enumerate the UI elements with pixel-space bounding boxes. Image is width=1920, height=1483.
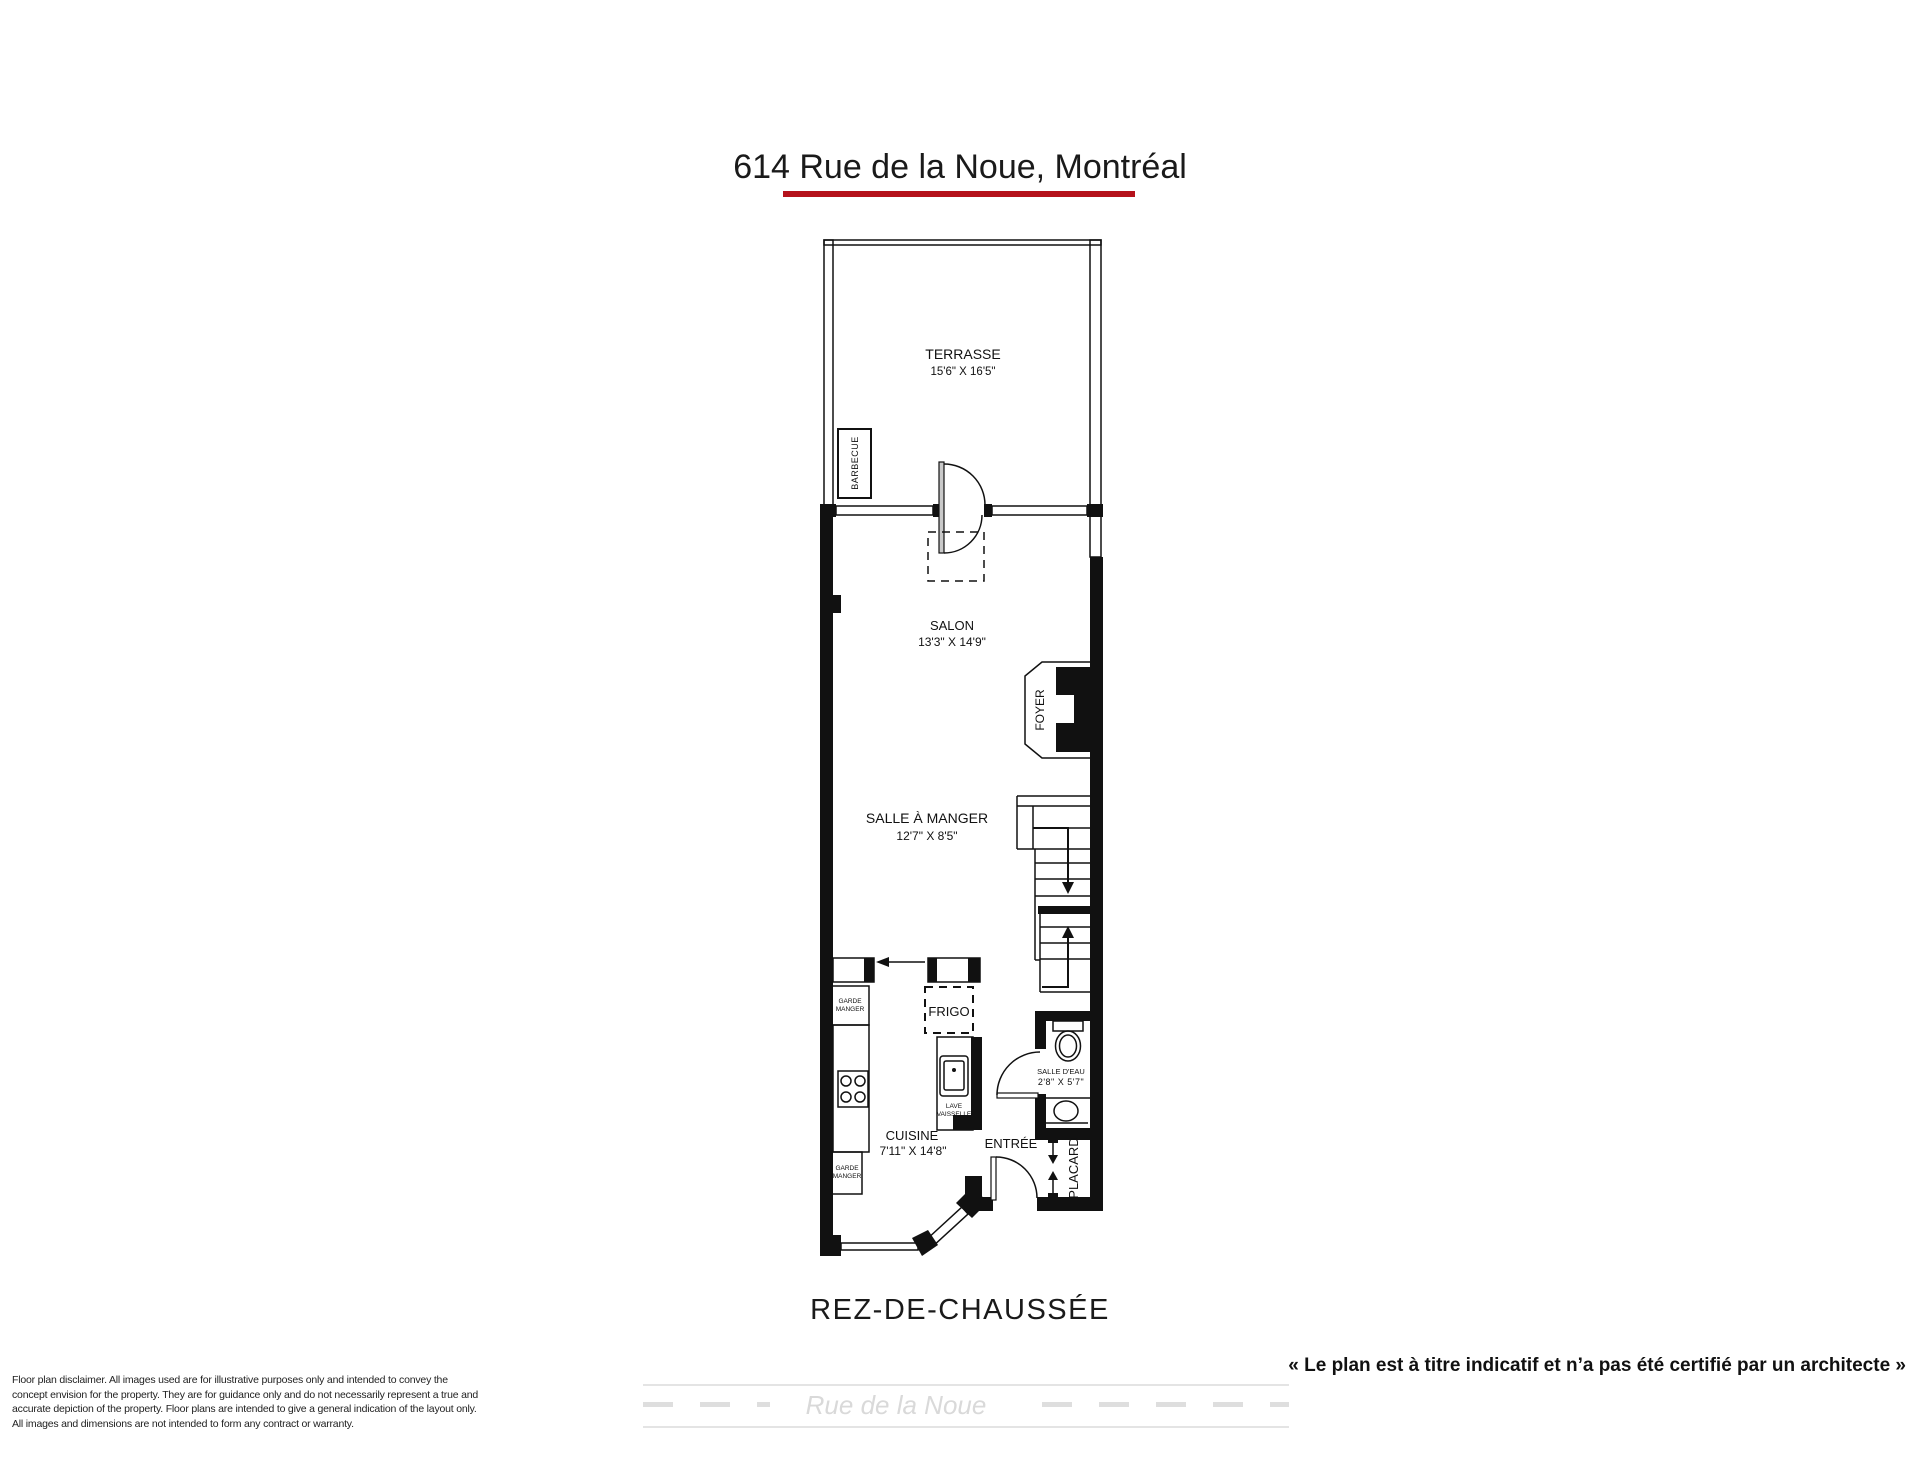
page-title: 614 Rue de la Noue, Montréal bbox=[560, 148, 1360, 187]
lave-vaisselle-label: LAVE bbox=[946, 1103, 963, 1110]
salle-a-manger-dims: 12'7" X 8'5" bbox=[896, 829, 957, 843]
stove bbox=[838, 1071, 868, 1107]
disclaimer-line: All images and dimensions are not intend… bbox=[12, 1417, 478, 1432]
bathroom-door-leaf bbox=[997, 1093, 1038, 1098]
staircase bbox=[1017, 796, 1090, 992]
passage-arrow-head bbox=[876, 957, 889, 967]
foyer-fireplace: FOYER bbox=[1025, 662, 1090, 758]
entree-area: ENTRÉE bbox=[985, 1136, 1103, 1211]
placard-arrow-up bbox=[1048, 1171, 1058, 1180]
bottom-wall bbox=[841, 1176, 993, 1256]
bathroom-door-swing bbox=[997, 1052, 1040, 1095]
front-door-swing bbox=[996, 1157, 1037, 1198]
door-swing-arc bbox=[944, 464, 985, 505]
salle-deau-area: SALLE D'EAU 2'8" X 5'7" bbox=[997, 1011, 1090, 1140]
placard-area: PLACARD bbox=[1048, 1133, 1081, 1203]
stairs-down-arrow bbox=[1062, 882, 1074, 894]
salle-deau-dims: 2'8" X 5'7" bbox=[1038, 1077, 1084, 1087]
salle-deau-label: SALLE D'EAU bbox=[1037, 1067, 1085, 1076]
terrasse-salon-wall bbox=[820, 504, 1103, 517]
fridge-label: FRIGO bbox=[928, 1004, 969, 1019]
garde-manger-top-label: MANGER bbox=[836, 1006, 865, 1013]
disclaimer-line: accurate depiction of the property. Floo… bbox=[12, 1402, 478, 1417]
garde-manger-top-label: GARDE bbox=[838, 998, 862, 1005]
foyer-label: FOYER bbox=[1033, 689, 1047, 731]
wall-corner bbox=[912, 1230, 938, 1256]
dashed-opening bbox=[928, 532, 984, 581]
kitchen-area: GARDE MANGER GARDE MANGER FRIGO LAVE VAI… bbox=[832, 957, 982, 1194]
front-door-leaf bbox=[991, 1157, 996, 1200]
faucet-dot bbox=[952, 1068, 956, 1072]
window-bottom bbox=[841, 1243, 918, 1250]
stairs-up-arrow bbox=[1062, 926, 1074, 938]
stairs-down-path bbox=[1033, 828, 1068, 884]
terrasse-label: TERRASSE bbox=[925, 346, 1000, 362]
disclaimer-line: Floor plan disclaimer. All images used a… bbox=[12, 1373, 478, 1388]
placard-label: PLACARD bbox=[1066, 1137, 1081, 1198]
street-edge-top bbox=[643, 1384, 1289, 1386]
salle-a-manger-label: SALLE À MANGER bbox=[866, 810, 988, 826]
cuisine-label: CUISINE bbox=[886, 1128, 939, 1143]
title-underline bbox=[783, 191, 1135, 197]
disclaimer-text: Floor plan disclaimer. All images used a… bbox=[12, 1373, 478, 1431]
floor-plan-drawing: TERRASSE 15'6" X 16'5" BARBECUE bbox=[770, 230, 1150, 1290]
window-right bbox=[992, 506, 1087, 515]
architect-note: « Le plan est à titre indicatif et n’a p… bbox=[1288, 1355, 1906, 1377]
cuisine-dims: 7'11" X 14'8" bbox=[880, 1144, 947, 1158]
salle-a-manger-area: SALLE À MANGER 12'7" X 8'5" bbox=[866, 810, 988, 843]
terrasse-dims: 15'6" X 16'5" bbox=[931, 366, 996, 378]
salon-dims: 13'3" X 14'9" bbox=[918, 635, 986, 649]
floor-level-label: REZ-DE-CHAUSSÉE bbox=[660, 1294, 1260, 1327]
entree-label: ENTRÉE bbox=[985, 1136, 1038, 1151]
window-left bbox=[836, 506, 933, 515]
street-name-label: Rue de la Noue bbox=[770, 1390, 1022, 1421]
door-leaf bbox=[939, 462, 944, 553]
door-swing-arc bbox=[944, 515, 982, 553]
salon-area: SALON 13'3" X 14'9" bbox=[918, 618, 986, 649]
toilet-tank bbox=[1053, 1021, 1083, 1031]
street-edge-bottom bbox=[643, 1426, 1289, 1428]
exterior-walls bbox=[820, 504, 1103, 1256]
lave-vaisselle-label: VAISSELLE bbox=[937, 1111, 972, 1118]
garde-manger-bottom-label: GARDE bbox=[835, 1165, 859, 1172]
bathroom-sink bbox=[1054, 1101, 1078, 1121]
barbecue-label: BARBECUE bbox=[850, 436, 860, 490]
salon-label: SALON bbox=[930, 618, 974, 633]
placard-arrow-down bbox=[1048, 1155, 1058, 1164]
garde-manger-bottom-label: MANGER bbox=[833, 1173, 862, 1180]
terrasse-door bbox=[928, 462, 985, 581]
disclaimer-line: concept envision for the property. They … bbox=[12, 1388, 478, 1403]
floor-plan-page: 614 Rue de la Noue, Montréal TERRASSE 15… bbox=[0, 0, 1920, 1483]
terrasse-area: TERRASSE 15'6" X 16'5" BARBECUE bbox=[824, 240, 1101, 506]
